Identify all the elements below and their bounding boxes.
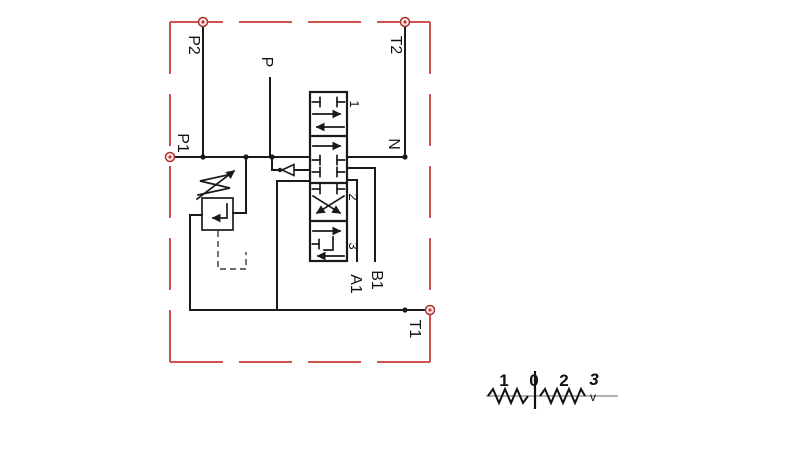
valve-position-label-3: 3 (346, 242, 361, 249)
spool-envelope (310, 92, 347, 261)
relief-inlet-line (233, 157, 246, 213)
relief-pilot-line (218, 231, 246, 269)
legend-position-0: 0 (529, 371, 538, 390)
legend-spool-positions: 1 0 2 3 v (486, 370, 618, 409)
port-connector-t1-center (428, 308, 431, 311)
legend-detent-mark: v (590, 390, 596, 404)
junction-t1 (402, 307, 407, 312)
relief-adjust-arrow-icon (197, 171, 234, 199)
port-connector-t2-center (403, 20, 406, 23)
port-labels: P2 T2 P P1 N A1 B1 T1 (174, 35, 423, 338)
junction-n-t2 (402, 154, 407, 159)
relief-valve (197, 171, 246, 269)
port-label-t2: T2 (387, 36, 404, 55)
valve-position-label-2: 2 (346, 193, 361, 200)
port-label-t1: T1 (406, 320, 423, 339)
junction-relief-p1 (243, 154, 248, 159)
float-bend-icon (324, 237, 333, 250)
port-connector-p1-center (168, 155, 171, 158)
relief-drain-line (190, 215, 202, 310)
valve-position-label-1: 1 (347, 100, 362, 107)
port-label-n: N (385, 138, 402, 150)
tank-return-line (277, 181, 310, 310)
relief-valve-body (202, 198, 233, 230)
spool-section-0 (313, 146, 345, 177)
legend-position-3: 3 (589, 370, 599, 389)
port-label-p2: P2 (185, 35, 202, 55)
schematic-page: 1 2 3 P2 T2 P P1 N A1 B1 T1 1 0 2 3 v (0, 0, 800, 450)
spool-section-3 (313, 231, 345, 256)
hydraulic-lines (170, 22, 430, 310)
check-valve-seat-icon (282, 165, 294, 176)
port-label-p: P (258, 57, 275, 68)
port-label-p1: P1 (174, 133, 191, 153)
spool-section-1 (313, 98, 345, 128)
hydraulic-schematic: 1 2 3 P2 T2 P P1 N A1 B1 T1 1 0 2 3 v (0, 0, 800, 450)
legend-position-1: 1 (499, 371, 508, 390)
port-label-b1: B1 (368, 270, 385, 290)
port-connection-points (166, 18, 435, 315)
spool-section-2 (313, 185, 345, 214)
directional-valve: 1 2 3 (310, 92, 362, 261)
junction-p-p1 (269, 154, 274, 159)
legend-position-2: 2 (559, 371, 568, 390)
crossed-flow-arrow-icon (313, 196, 340, 213)
port-label-a1: A1 (347, 274, 364, 294)
junction-p2-p1 (200, 154, 205, 159)
check-valve (278, 165, 294, 176)
port-connector-p2-center (201, 20, 204, 23)
relief-flow-arrow-icon (213, 204, 227, 218)
crossed-flow-arrow-icon (317, 196, 344, 213)
